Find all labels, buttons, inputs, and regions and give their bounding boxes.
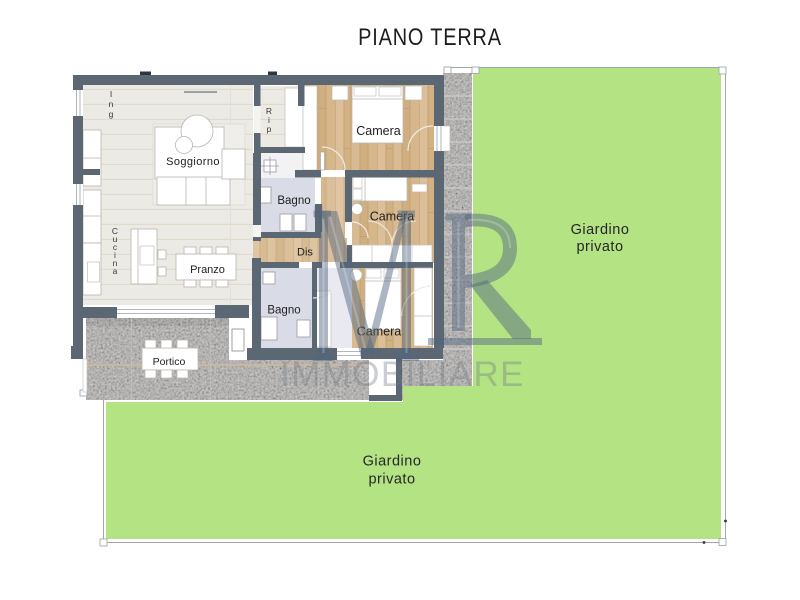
svg-text:privato: privato [576, 239, 623, 255]
svg-text:Giardino: Giardino [363, 454, 422, 470]
svg-text:PIANO TERRA: PIANO TERRA [358, 23, 502, 50]
svg-text:Portico: Portico [153, 356, 186, 368]
svg-text:Camera: Camera [356, 124, 401, 138]
svg-text:Pranzo: Pranzo [190, 264, 225, 276]
svg-text:n: n [109, 99, 114, 109]
svg-text:privato: privato [368, 472, 415, 488]
svg-text:Bagno: Bagno [277, 195, 310, 207]
svg-text:p: p [267, 124, 272, 134]
svg-text:g: g [109, 109, 114, 119]
svg-text:Bagno: Bagno [267, 305, 300, 317]
svg-text:I: I [110, 89, 112, 99]
svg-text:a: a [113, 266, 118, 276]
svg-text:IMMOBILIARE: IMMOBILIARE [280, 355, 525, 394]
svg-text:Giardino: Giardino [571, 222, 630, 238]
svg-text:Dis: Dis [297, 247, 313, 259]
svg-text:Soggiorno: Soggiorno [166, 156, 220, 168]
